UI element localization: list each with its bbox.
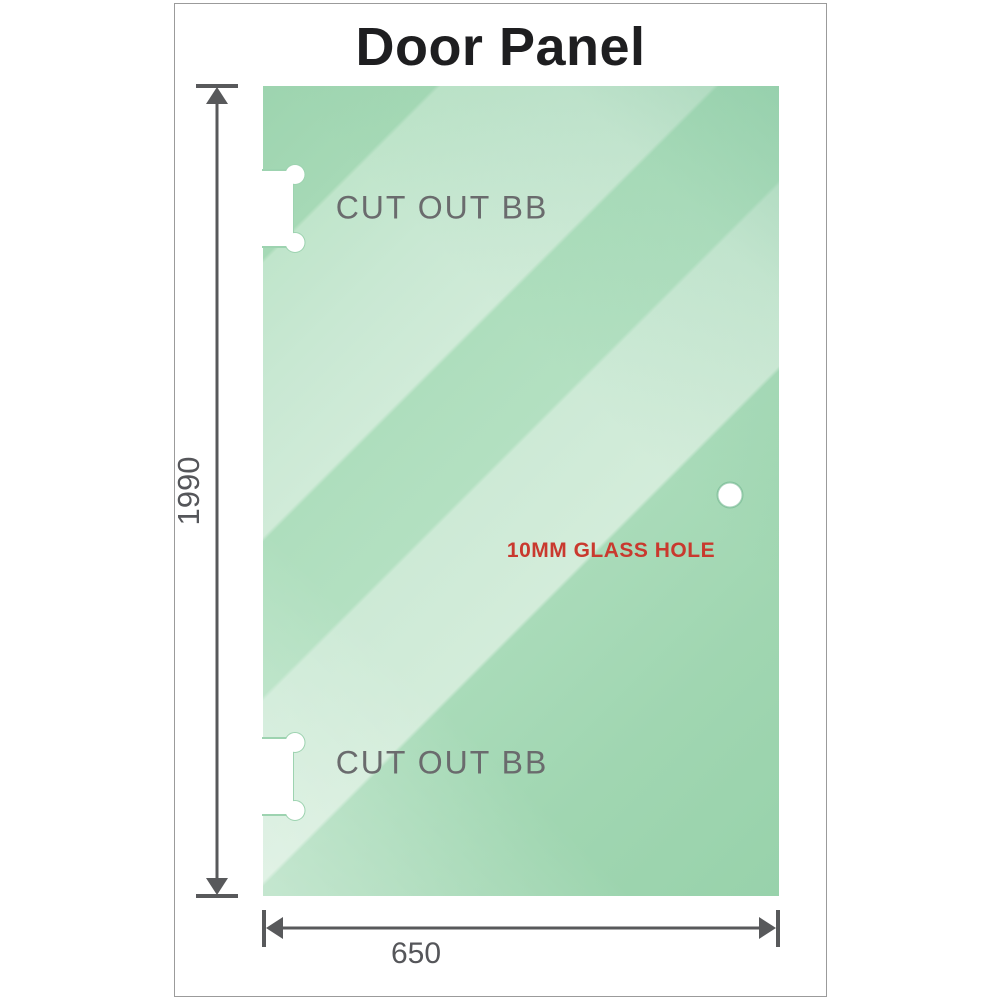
cutout-top-label: CUT OUT BB bbox=[336, 190, 549, 227]
cutout-bottom-label: CUT OUT BB bbox=[336, 745, 549, 782]
page-title: Door Panel bbox=[174, 16, 827, 78]
width-dimension-value: 650 bbox=[391, 937, 441, 971]
glass-hole-label: 10MM GLASS HOLE bbox=[507, 539, 715, 563]
height-dimension-value: 1990 bbox=[171, 457, 207, 526]
